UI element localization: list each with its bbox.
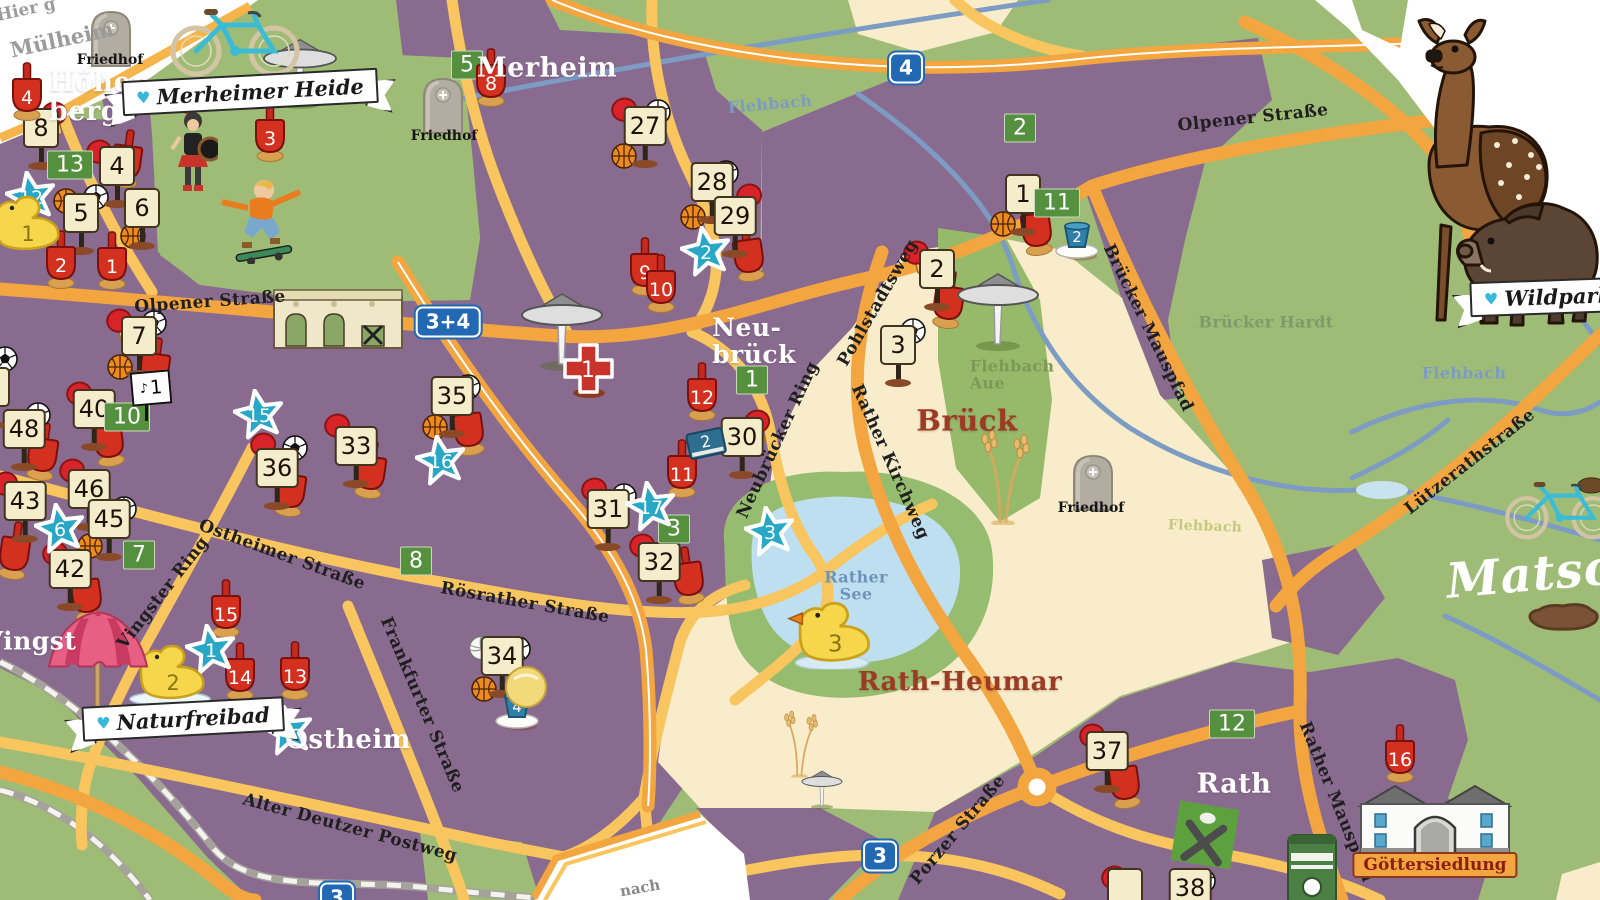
district-label: Brück (916, 405, 1017, 436)
district-label: Rath-Heumar (858, 668, 1062, 696)
playground-sign-marker-3[interactable]: 3 (880, 325, 916, 387)
svg-text:4: 4 (21, 87, 33, 109)
first-aid-marker-1[interactable]: 1 (558, 339, 618, 399)
banner-label: Wildpark (1504, 282, 1600, 311)
svg-text:1: 1 (106, 256, 118, 278)
roundabout (1023, 773, 1051, 801)
sand-shovel-marker-12[interactable]: 12 (683, 361, 721, 421)
gladiator-character (166, 105, 218, 201)
wheat-icon-small (780, 710, 819, 777)
cemetery-label: Friedhof (1058, 500, 1125, 516)
svg-text:2: 2 (1072, 228, 1082, 246)
bicycle-illustration (160, 0, 310, 77)
svg-text:16: 16 (429, 451, 453, 473)
heart-icon: ♥ (1484, 289, 1499, 308)
sand-shovel-marker-3[interactable]: 3 (251, 102, 289, 162)
svg-text:6: 6 (54, 519, 66, 541)
cemetery-label: Friedhof (411, 128, 478, 144)
playground-sign-marker-x[interactable] (0, 367, 10, 429)
cemetery-icon (415, 71, 471, 135)
svg-text:15: 15 (214, 604, 238, 626)
playground-sign-marker-42[interactable]: 42 (49, 549, 92, 611)
green-number-badge-12[interactable]: 12 (1209, 710, 1255, 739)
district-label: Neu- brück (712, 314, 796, 368)
music-sign-marker-1[interactable]: ♪1 (131, 371, 171, 421)
banner-label: Naturfreibad (116, 702, 270, 735)
cemetery-label: Friedhof (77, 52, 144, 68)
svg-text:15: 15 (247, 405, 271, 427)
wheat-icon (976, 429, 1032, 525)
svg-text:2: 2 (55, 255, 67, 277)
water-label: Brücker Hardt (1199, 313, 1334, 330)
autobahn-badge-3+4: 3+4 (416, 307, 481, 338)
autobahn-badge-3: 3 (863, 841, 897, 872)
poi-banner[interactable]: ♥Wildpark (1469, 277, 1600, 317)
green-number-badge-11[interactable]: 11 (1034, 189, 1080, 218)
playground-sign-marker-x[interactable] (1107, 868, 1143, 900)
sand-bucket-marker-2[interactable]: 2 (1052, 220, 1104, 262)
duck-marker-3[interactable]: 3 (785, 599, 880, 669)
tram-illustration (1285, 831, 1339, 900)
water-label: Flehbach (1168, 518, 1243, 536)
book-marker-2[interactable]: 2 (682, 423, 730, 463)
green-number-badge-1[interactable]: 1 (736, 366, 768, 395)
playground-sign-marker-38[interactable]: 38 (1169, 868, 1212, 900)
sand-shovel-marker-1[interactable]: 1 (93, 230, 131, 290)
poi-name-badge: Göttersiedlung (1352, 852, 1517, 878)
svg-text:10: 10 (649, 279, 673, 301)
green-number-badge-7[interactable]: 7 (123, 541, 155, 570)
autobahn-badge-4: 4 (889, 53, 923, 84)
playground-sign-marker-36[interactable]: 36 (256, 448, 299, 510)
svg-text:2: 2 (166, 671, 179, 695)
star-marker-16[interactable]: 16 (415, 435, 469, 489)
bicycle-illustration-east (1496, 470, 1600, 540)
sand-shovel-marker-4[interactable]: 4 (8, 61, 46, 121)
star-marker-15[interactable]: 15 (233, 389, 287, 443)
sand-shovel-marker-16[interactable]: 16 (1381, 723, 1419, 783)
illustrated-city-district-map: FriedhofFriedhofFriedhof8456272829740483… (0, 0, 1600, 900)
playground-sign-marker-2[interactable]: 2 (919, 249, 955, 311)
duck-marker-1[interactable]: 1 (0, 193, 68, 257)
cartwheel-sign-marker[interactable] (1168, 798, 1242, 872)
svg-text:17: 17 (639, 497, 663, 519)
playground-sign-marker-27[interactable]: 27 (624, 106, 667, 168)
svg-text:1: 1 (581, 358, 595, 383)
heart-icon: ♥ (136, 88, 151, 108)
svg-text:13: 13 (283, 666, 307, 688)
shelter-umbrella-icon (950, 268, 1046, 352)
star-marker-17[interactable]: 17 (625, 481, 679, 535)
playground-sign-marker-32[interactable]: 32 (638, 542, 681, 604)
sand-shovel-marker-13[interactable]: 13 (276, 640, 314, 700)
svg-text:12: 12 (690, 387, 714, 409)
playground-sign-marker-33[interactable]: 33 (335, 426, 378, 488)
green-number-badge-2[interactable]: 2 (1004, 114, 1036, 143)
district-label: Vingst (0, 628, 76, 655)
svg-text:2: 2 (700, 242, 712, 264)
playground-sign-marker-31[interactable]: 31 (587, 489, 630, 551)
svg-text:16: 16 (1388, 749, 1412, 771)
palace-building-illustration (272, 282, 404, 354)
autobahn-badge-3: 3 (320, 883, 354, 900)
yellow-ball-icon (504, 665, 548, 709)
water-label: Rather See (824, 569, 887, 604)
banner-label: Merheimer Heide (156, 74, 364, 110)
playground-sign-marker-37[interactable]: 37 (1086, 731, 1129, 793)
playground-sign-marker-35[interactable]: 35 (431, 376, 474, 438)
star-marker-6[interactable]: 6 (34, 503, 88, 557)
svg-text:3: 3 (264, 128, 276, 150)
svg-text:1: 1 (21, 222, 34, 246)
heart-icon: ♥ (96, 713, 111, 733)
water-label: Flehbach Aue (970, 358, 1055, 393)
svg-text:3: 3 (764, 522, 776, 544)
svg-text:3: 3 (828, 632, 843, 658)
district-label: Rath (1197, 769, 1272, 798)
district-label: Merheim (477, 53, 617, 82)
green-number-badge-8[interactable]: 8 (400, 547, 432, 576)
playground-sign-marker-7[interactable]: 7 (121, 316, 157, 378)
sand-shovel-marker-10[interactable]: 10 (642, 253, 680, 313)
star-marker-2[interactable]: 2 (680, 226, 734, 280)
district-label: Ostheim (285, 726, 411, 754)
mud-puddle-icon (1525, 600, 1600, 634)
skateboarder-character (212, 164, 308, 264)
small-pond (1356, 481, 1408, 499)
water-label: Flehbach (1422, 364, 1507, 381)
